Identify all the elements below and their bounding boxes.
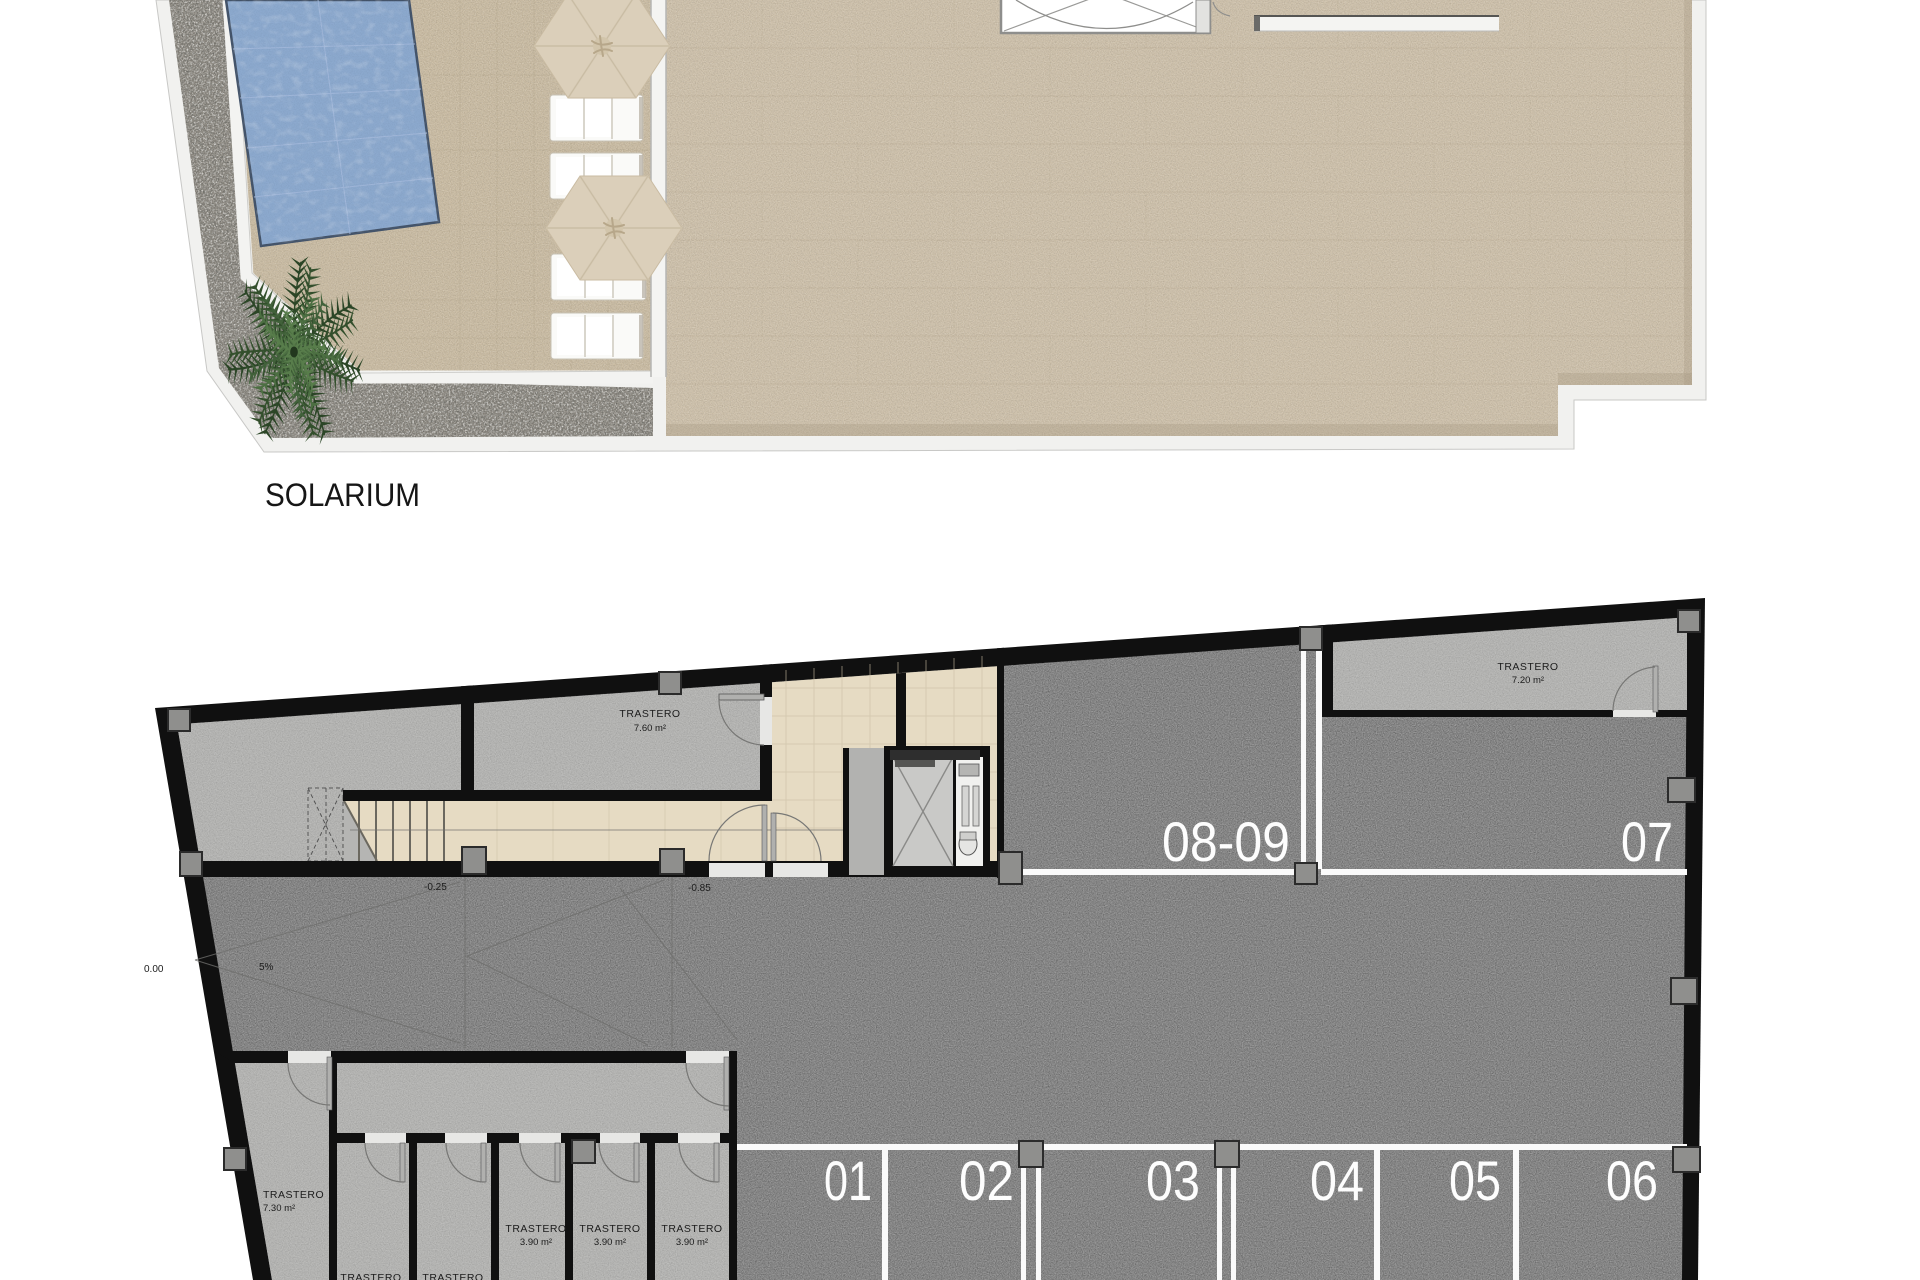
svg-text:06: 06 <box>1606 1149 1658 1212</box>
svg-text:03: 03 <box>1146 1149 1200 1212</box>
svg-text:SOLARIUM: SOLARIUM <box>265 477 420 513</box>
svg-text:07: 07 <box>1621 810 1673 873</box>
svg-text:7.30 m²: 7.30 m² <box>263 1203 295 1214</box>
svg-text:TRASTERO: TRASTERO <box>340 1272 401 1280</box>
svg-text:TRASTERO: TRASTERO <box>1497 661 1558 673</box>
svg-text:3.90 m²: 3.90 m² <box>594 1237 626 1248</box>
svg-text:08-09: 08-09 <box>1162 810 1290 873</box>
svg-text:TRASTERO: TRASTERO <box>619 708 680 720</box>
svg-text:-0.85: -0.85 <box>688 883 711 894</box>
svg-text:05: 05 <box>1449 1149 1501 1212</box>
svg-text:7.60 m²: 7.60 m² <box>634 723 666 734</box>
svg-text:3.90 m²: 3.90 m² <box>676 1237 708 1248</box>
svg-text:01: 01 <box>824 1149 872 1212</box>
svg-text:02: 02 <box>959 1149 1014 1212</box>
svg-text:7.20 m²: 7.20 m² <box>1512 675 1544 686</box>
svg-text:TRASTERO: TRASTERO <box>505 1223 566 1235</box>
svg-text:TRASTERO: TRASTERO <box>661 1223 722 1235</box>
svg-text:-0.25: -0.25 <box>424 882 447 893</box>
svg-text:04: 04 <box>1310 1149 1364 1212</box>
svg-text:0.00: 0.00 <box>144 964 164 975</box>
svg-text:TRASTERO: TRASTERO <box>263 1189 324 1201</box>
svg-text:5%: 5% <box>259 962 274 973</box>
svg-text:TRASTERO: TRASTERO <box>422 1272 483 1280</box>
svg-text:TRASTERO: TRASTERO <box>579 1223 640 1235</box>
svg-text:3.90 m²: 3.90 m² <box>520 1237 552 1248</box>
